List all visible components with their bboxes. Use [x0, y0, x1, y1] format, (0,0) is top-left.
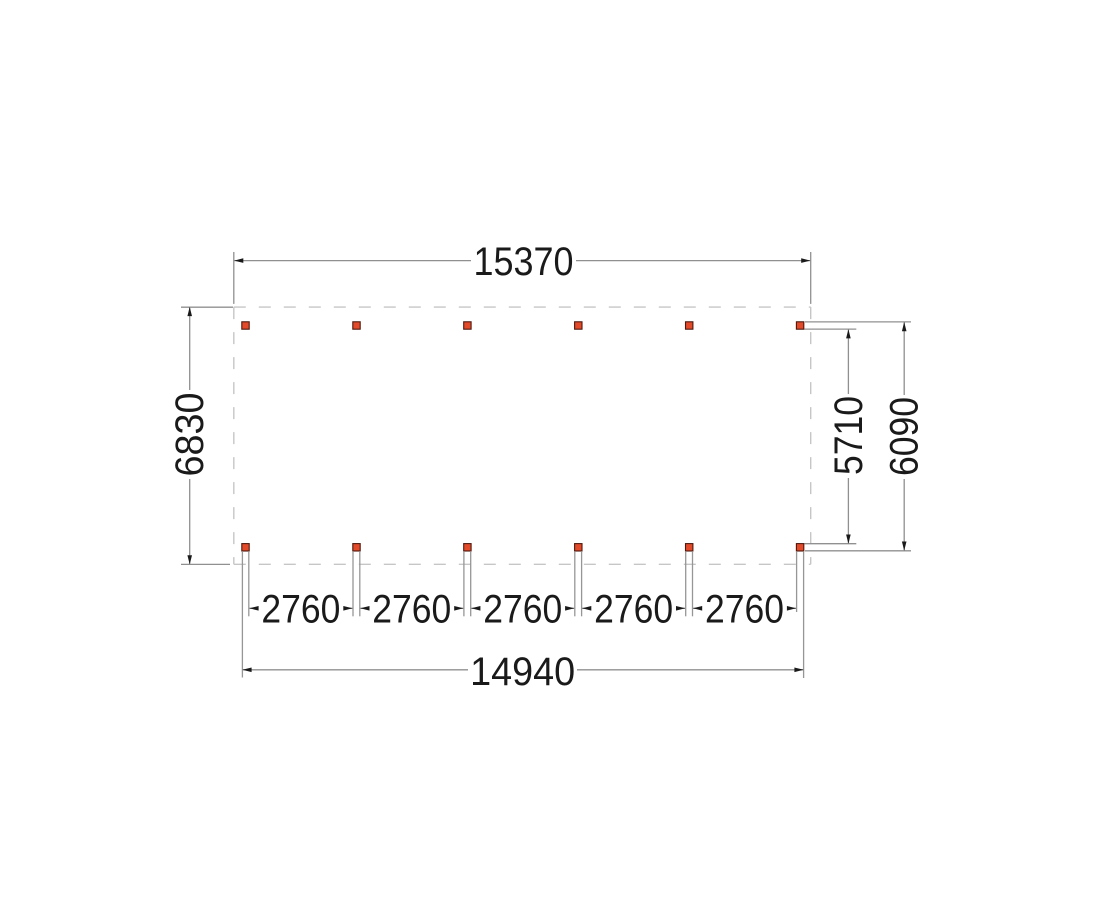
svg-text:5710: 5710 — [827, 396, 871, 475]
svg-text:2760: 2760 — [594, 587, 673, 631]
svg-text:14940: 14940 — [470, 650, 575, 694]
svg-text:2760: 2760 — [705, 587, 784, 631]
svg-text:2760: 2760 — [261, 587, 340, 631]
svg-text:2760: 2760 — [372, 587, 451, 631]
svg-text:6090: 6090 — [883, 397, 927, 476]
svg-text:15370: 15370 — [474, 240, 574, 284]
svg-text:2760: 2760 — [483, 587, 562, 631]
svg-text:6830: 6830 — [168, 393, 212, 477]
